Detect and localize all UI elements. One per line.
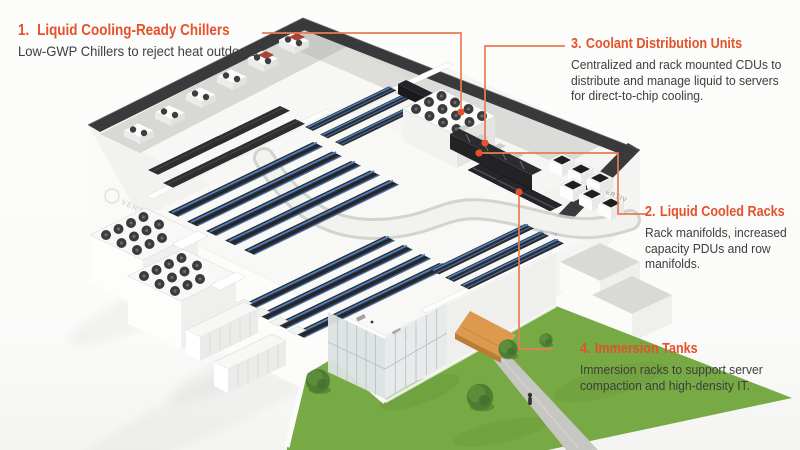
- callout-2-title: 2.Liquid Cooled Racks: [645, 204, 791, 221]
- callout-4-number: 4.: [580, 341, 591, 357]
- callout-1-title: 1.Liquid Cooling-Ready Chillers: [18, 22, 279, 39]
- callout-3-description: Centralized and rack mounted CDUs to dis…: [571, 57, 790, 104]
- marker-dot-1: [457, 108, 464, 115]
- callout-1-number: 1.: [18, 22, 29, 39]
- callout-2-description: Rack manifolds, increased capacity PDUs …: [645, 225, 800, 272]
- callout-1-liquid-cooling-ready-chillers: 1.Liquid Cooling-Ready Chillers Low-GWP …: [18, 22, 318, 60]
- infographic-stage: VERTIV VERTIV: [0, 0, 800, 450]
- callout-4-immersion-tanks: 4.Immersion Tanks Immersion racks to sup…: [580, 341, 800, 393]
- marker-dot-2: [475, 149, 482, 156]
- callout-3-coolant-distribution-units: 3.Coolant Distribution Units Centralized…: [571, 36, 800, 104]
- person-figure: [528, 393, 532, 405]
- callout-3-number: 3.: [571, 36, 582, 52]
- callout-1-description: Low-GWP Chillers to reject heat outdoors…: [18, 43, 297, 60]
- callout-4-description: Immersion racks to support server compac…: [580, 362, 789, 393]
- callout-4-title: 4.Immersion Tanks: [580, 341, 776, 358]
- callout-3-title: 3.Coolant Distribution Units: [571, 36, 775, 53]
- marker-dot-4: [515, 188, 522, 195]
- marker-dot-3: [481, 139, 488, 146]
- callout-2-liquid-cooled-racks: 2.Liquid Cooled Racks Rack manifolds, in…: [645, 204, 800, 272]
- callout-2-number: 2.: [645, 204, 656, 220]
